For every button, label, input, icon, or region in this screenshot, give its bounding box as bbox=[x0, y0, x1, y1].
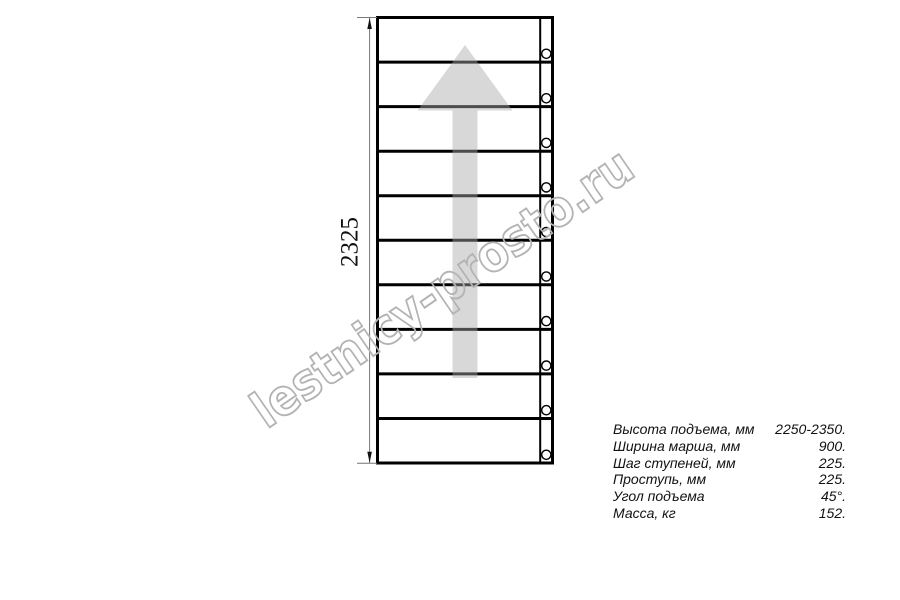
bolt-hole-icon bbox=[542, 272, 551, 281]
watermark: lestnicy-prosto.ru bbox=[241, 137, 645, 440]
spec-row-angle: Угол подъема 45°. bbox=[613, 488, 846, 505]
spec-label: Масса, кг bbox=[613, 505, 676, 521]
dimension-label: 2325 bbox=[337, 217, 364, 267]
spec-row-width: Ширина марша, мм 900. bbox=[613, 438, 846, 455]
bolt-hole-icon bbox=[542, 49, 551, 58]
bolt-hole-icon bbox=[542, 138, 551, 147]
bolt-hole-icon bbox=[542, 361, 551, 370]
spec-label: Высота подъема, мм bbox=[613, 421, 755, 437]
spec-row-tread: Проступь, мм 225. bbox=[613, 471, 846, 488]
spec-label: Шаг ступеней, мм bbox=[613, 455, 736, 471]
dimension-arrowhead-up-icon bbox=[367, 18, 372, 29]
spec-value: 225. bbox=[819, 471, 846, 487]
bolt-hole-icon bbox=[542, 317, 551, 326]
spec-value: 900. bbox=[819, 438, 846, 454]
spec-label: Угол подъема bbox=[613, 488, 705, 504]
specs-table: Высота подъема, мм 2250-2350. Ширина мар… bbox=[613, 421, 846, 521]
spec-label: Ширина марша, мм bbox=[613, 438, 740, 454]
spec-value: 45°. bbox=[821, 488, 846, 504]
bolt-hole-icon bbox=[542, 94, 551, 103]
spec-label: Проступь, мм bbox=[613, 471, 706, 487]
spec-row-mass: Масса, кг 152. bbox=[613, 504, 846, 521]
spec-value: 152. bbox=[819, 505, 846, 521]
spec-row-step-pitch: Шаг ступеней, мм 225. bbox=[613, 454, 846, 471]
spec-value: 225. bbox=[819, 455, 846, 471]
bolt-hole-icon bbox=[542, 406, 551, 415]
bolt-holes bbox=[542, 49, 551, 459]
spec-row-height: Высота подъема, мм 2250-2350. bbox=[613, 421, 846, 438]
spec-value: 2250-2350. bbox=[775, 421, 846, 437]
page: 2325 lestnicy-prosto.ru Высота подъема, … bbox=[0, 0, 900, 600]
dimension-arrowhead-down-icon bbox=[367, 452, 372, 463]
bolt-hole-icon bbox=[542, 450, 551, 459]
